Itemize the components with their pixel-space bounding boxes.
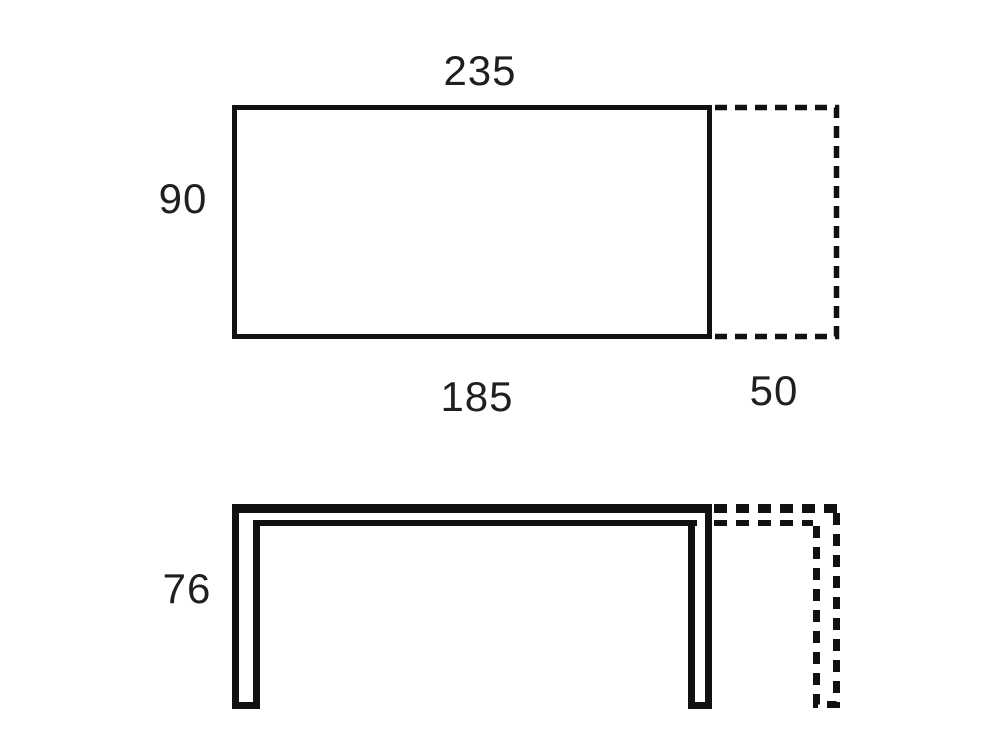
drawing-svg: 235 90 185 50 76 (0, 0, 1000, 750)
tabletop-slab (232, 504, 712, 513)
right-leg (692, 513, 709, 706)
dimension-fixed-length: 185 (440, 373, 513, 420)
tabletop-outline (235, 108, 710, 337)
dimension-extension-length: 50 (750, 367, 799, 414)
apron-line (253, 520, 697, 526)
extension-leaf-dashed-outline (715, 108, 837, 337)
table-dimension-drawing: 235 90 185 50 76 (0, 0, 1000, 750)
left-leg (236, 513, 257, 706)
extension-leg-dashed (817, 513, 837, 705)
dimension-height: 76 (163, 565, 212, 612)
top-view: 235 90 185 50 (159, 47, 837, 420)
front-view: 76 (163, 504, 841, 706)
dimension-depth: 90 (159, 175, 208, 222)
dimension-total-length: 235 (443, 47, 516, 94)
